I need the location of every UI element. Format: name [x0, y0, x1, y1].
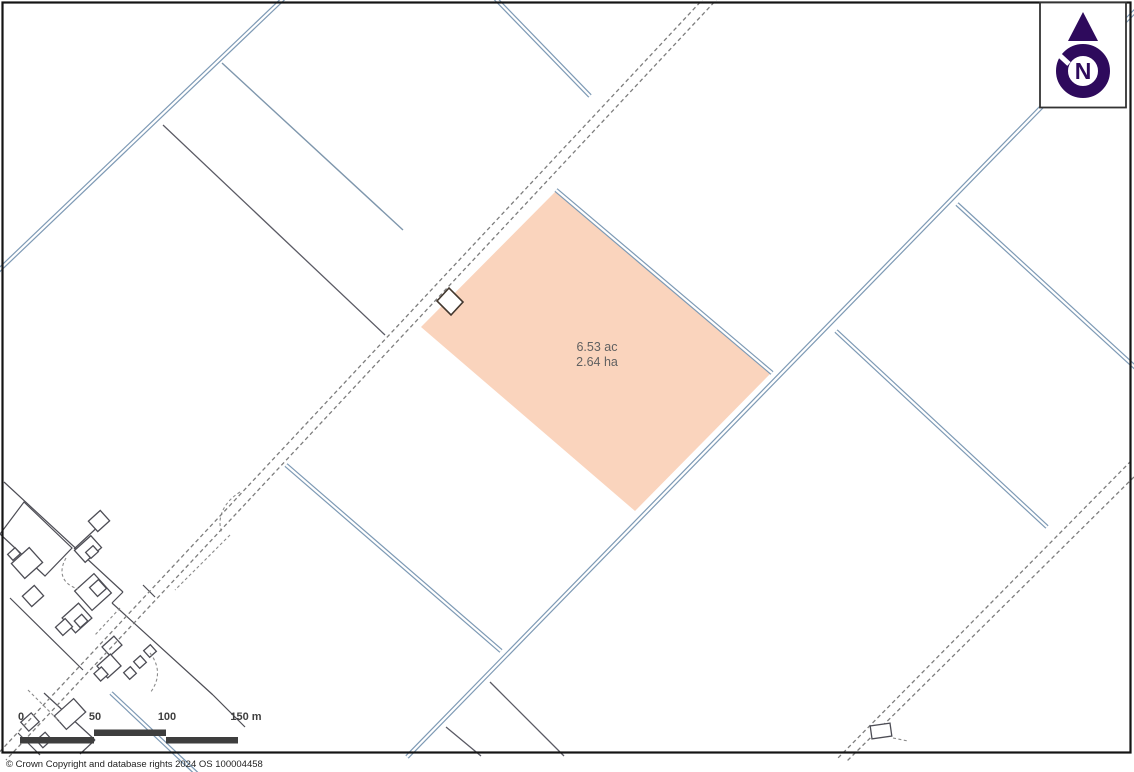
parcel-area-acres: 6.53 ac	[576, 340, 617, 354]
north-arrow: N	[1040, 3, 1126, 108]
north-letter: N	[1075, 58, 1092, 84]
scale-label-100: 100	[158, 711, 176, 723]
scale-label-150m: 150 m	[230, 711, 261, 723]
village-buildings-layer	[0, 482, 245, 755]
map-canvas: 6.53 ac 2.64 ha 0 50 100 150 m N	[0, 0, 1134, 772]
scale-label-0: 0	[18, 711, 24, 723]
parcel-area-hectares: 2.64 ha	[576, 355, 618, 369]
parcel-area-label: 6.53 ac 2.64 ha	[576, 340, 618, 369]
copyright-notice: © Crown Copyright and database rights 20…	[6, 759, 263, 770]
field-boundary-lines	[163, 63, 564, 756]
dashed-track-southeast	[838, 461, 1134, 762]
scale-label-50: 50	[89, 711, 101, 723]
land-plan-map-page: 6.53 ac 2.64 ha 0 50 100 150 m N	[0, 0, 1134, 772]
